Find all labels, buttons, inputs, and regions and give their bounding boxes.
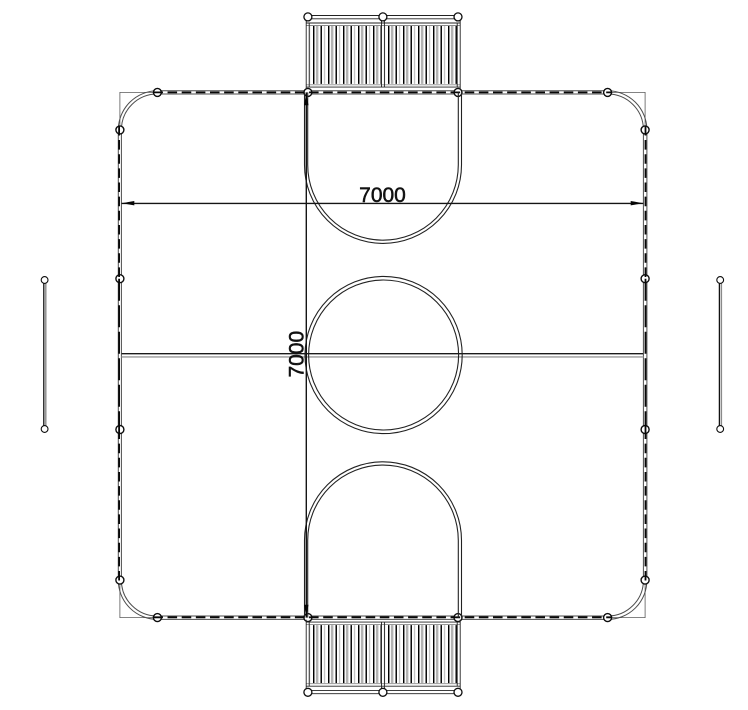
svg-text:7000: 7000 bbox=[359, 184, 406, 207]
svg-text:7000: 7000 bbox=[286, 331, 309, 378]
